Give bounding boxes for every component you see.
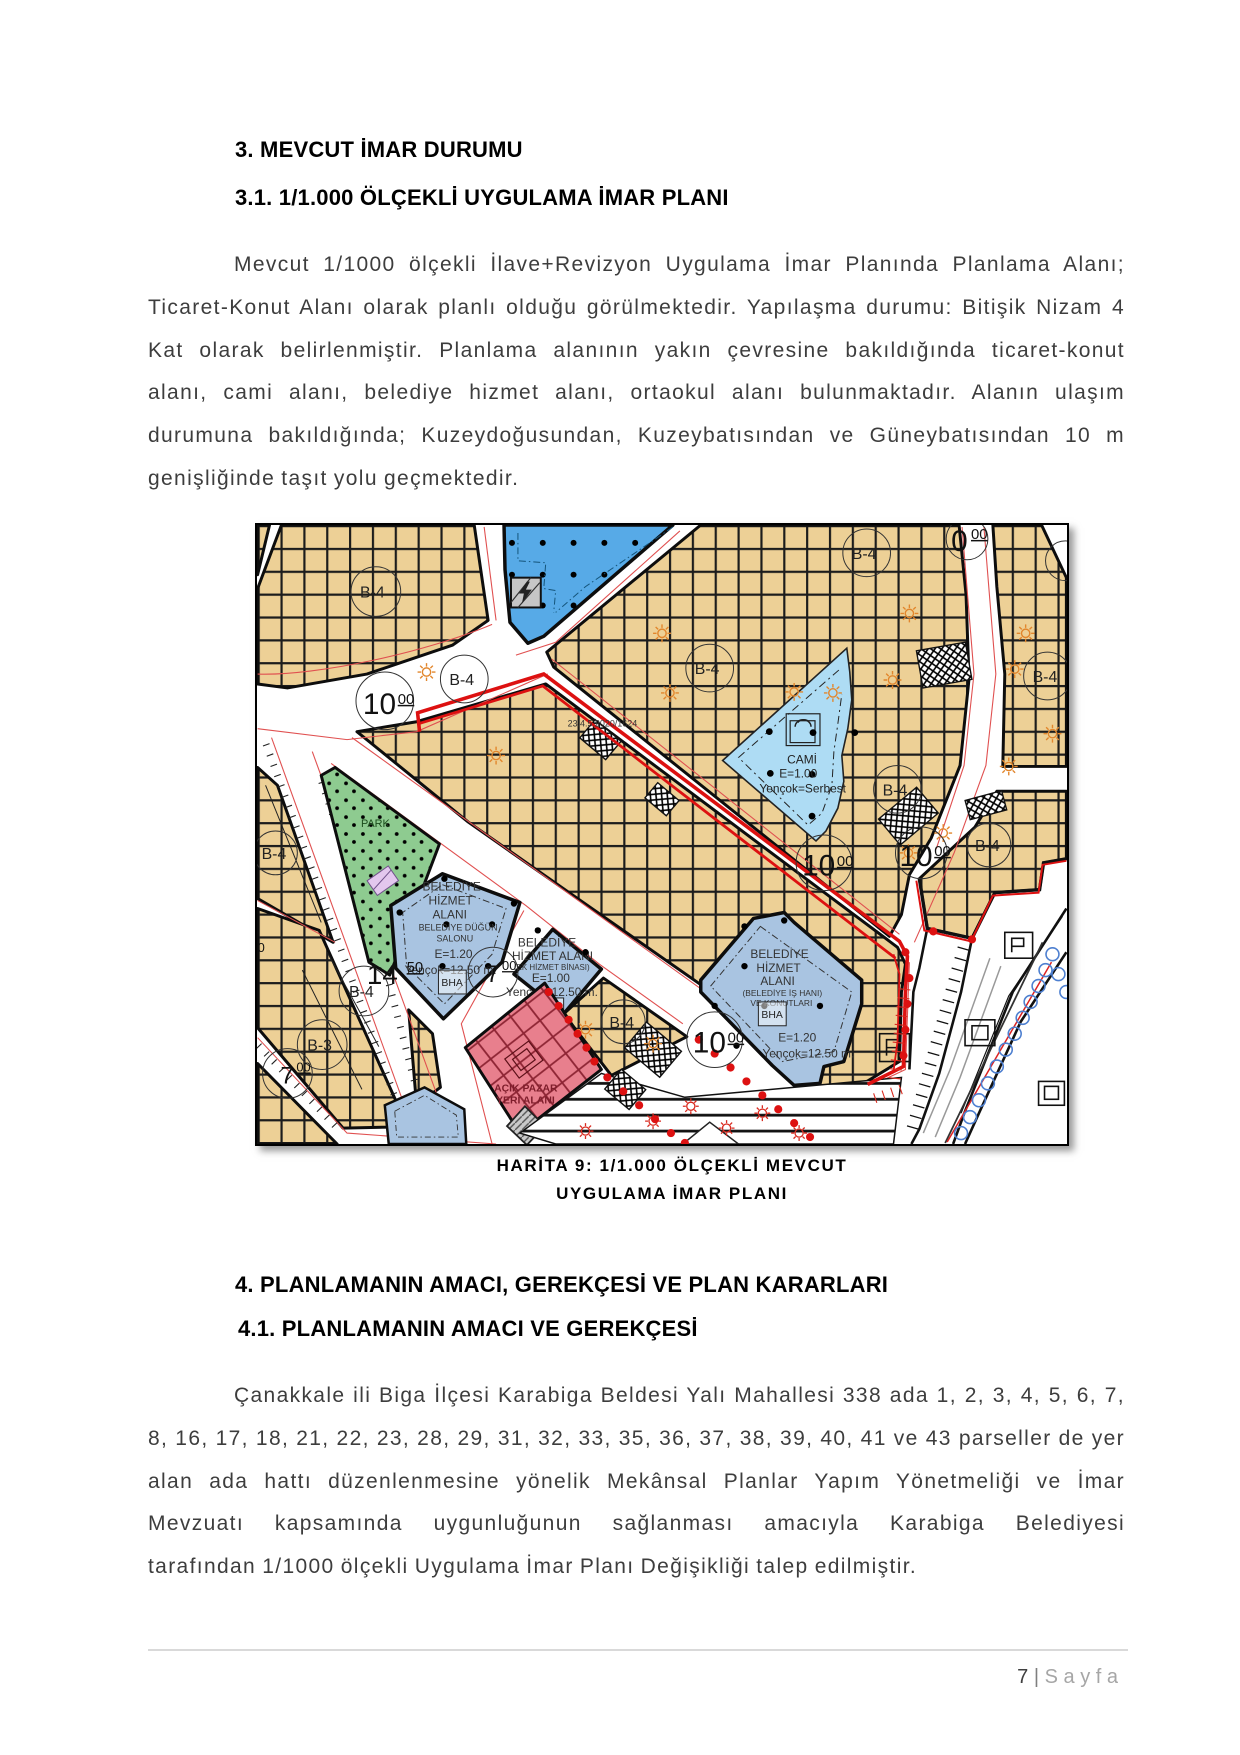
svg-text:HİZMET: HİZMET bbox=[429, 894, 473, 908]
svg-text:50: 50 bbox=[407, 960, 424, 976]
svg-text:E=1.20: E=1.20 bbox=[434, 947, 472, 961]
svg-text:BHA: BHA bbox=[761, 1010, 782, 1021]
svg-text:B-4: B-4 bbox=[262, 846, 287, 863]
svg-text:10: 10 bbox=[363, 688, 396, 721]
svg-text:CAMİ: CAMİ bbox=[787, 752, 817, 766]
svg-text:HİZMET ALANI: HİZMET ALANI bbox=[512, 949, 593, 963]
svg-text:10: 10 bbox=[693, 1027, 726, 1060]
svg-text:B-4: B-4 bbox=[883, 782, 908, 799]
svg-text:Yençok=Serbest: Yençok=Serbest bbox=[759, 781, 846, 795]
svg-text:(BELEDİYE İŞ HANI): (BELEDİYE İŞ HANI) bbox=[742, 988, 822, 998]
svg-text:YERİ ALANI: YERİ ALANI bbox=[496, 1093, 555, 1106]
svg-text:BHA: BHA bbox=[441, 978, 462, 989]
svg-text:ALANI: ALANI bbox=[760, 974, 794, 988]
svg-text:BELEDİYE: BELEDİYE bbox=[423, 880, 481, 894]
svg-text:00: 00 bbox=[728, 1031, 745, 1047]
svg-text:00: 00 bbox=[502, 958, 516, 973]
svg-text:B-3: B-3 bbox=[307, 1038, 332, 1055]
svg-text:00: 00 bbox=[934, 844, 951, 860]
svg-text:B-4: B-4 bbox=[695, 661, 720, 678]
svg-text:BELEDİYE: BELEDİYE bbox=[518, 935, 576, 949]
svg-text:7: 7 bbox=[280, 1062, 293, 1089]
svg-text:B-4: B-4 bbox=[360, 585, 385, 602]
svg-text:14: 14 bbox=[367, 959, 398, 990]
svg-text:B-4: B-4 bbox=[1033, 669, 1058, 686]
svg-text:B-4: B-4 bbox=[449, 672, 474, 689]
svg-text:HİZMET: HİZMET bbox=[756, 961, 800, 975]
svg-text:BELEDİYE: BELEDİYE bbox=[750, 947, 808, 961]
svg-text:BELEDİYE DÜĞÜN: BELEDİYE DÜĞÜN bbox=[419, 922, 498, 932]
svg-text:ALANI: ALANI bbox=[432, 907, 466, 921]
svg-text:AÇIK PAZAR: AÇIK PAZAR bbox=[494, 1083, 558, 1094]
svg-text:00: 00 bbox=[296, 1059, 310, 1074]
svg-text:Yençok=12.50 m.: Yençok=12.50 m. bbox=[762, 1047, 854, 1061]
svg-text:B-4: B-4 bbox=[852, 546, 877, 563]
svg-text:PARK: PARK bbox=[361, 818, 391, 830]
svg-text:0: 0 bbox=[258, 940, 265, 955]
svg-text:E=1.00: E=1.00 bbox=[779, 766, 817, 780]
svg-text:00: 00 bbox=[837, 854, 854, 870]
svg-text:E=1.20: E=1.20 bbox=[778, 1031, 816, 1045]
svg-text:10: 10 bbox=[899, 840, 932, 873]
svg-text:0: 0 bbox=[951, 525, 968, 558]
svg-text:23.4.5.2020/1624: 23.4.5.2020/1624 bbox=[568, 719, 638, 729]
svg-text:SALONU: SALONU bbox=[436, 933, 473, 943]
svg-text:B-4: B-4 bbox=[975, 838, 1000, 855]
svg-text:10: 10 bbox=[802, 850, 835, 883]
svg-text:00: 00 bbox=[398, 692, 415, 708]
svg-text:00: 00 bbox=[971, 527, 988, 543]
svg-text:7: 7 bbox=[486, 961, 499, 988]
svg-text:B-4: B-4 bbox=[609, 1015, 634, 1032]
svg-text:E=1.00: E=1.00 bbox=[532, 971, 570, 985]
